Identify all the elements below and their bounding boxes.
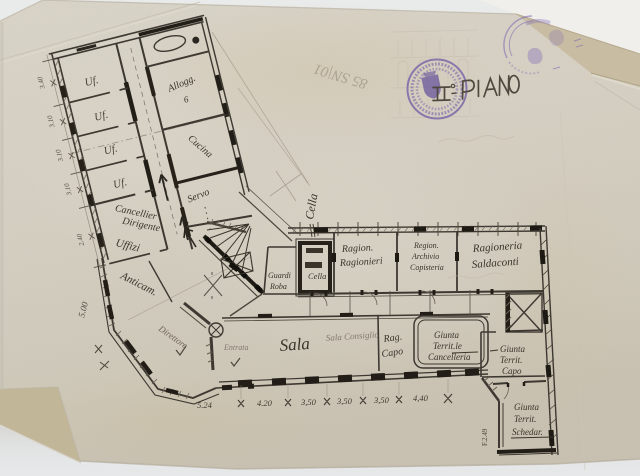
svg-text:Cella: Cella <box>308 271 326 281</box>
svg-text:Archivio: Archivio <box>411 252 439 261</box>
svg-text:Roba: Roba <box>269 282 287 291</box>
svg-text:Ragionieri: Ragionieri <box>339 256 384 269</box>
svg-text:Entrata: Entrata <box>223 343 248 352</box>
svg-text:3,50: 3,50 <box>336 396 353 406</box>
svg-text:Sala: Sala <box>279 334 310 355</box>
svg-text:Cancelleria: Cancelleria <box>428 352 471 362</box>
svg-text:Territ.: Territ. <box>500 355 522 365</box>
svg-text:4.20: 4.20 <box>257 398 273 408</box>
svg-text:Schedar.: Schedar. <box>512 427 543 437</box>
svg-text:4,40: 4,40 <box>413 393 429 403</box>
svg-text:Guardi: Guardi <box>268 271 291 280</box>
svg-text:F.2.49: F.2.49 <box>481 428 489 446</box>
svg-text:Giunta: Giunta <box>500 344 526 354</box>
svg-text:Copisteria: Copisteria <box>410 263 444 272</box>
svg-text:3,50: 3,50 <box>373 395 390 405</box>
svg-text:Territ.le: Territ.le <box>433 341 462 351</box>
svg-text:Giunta: Giunta <box>514 402 540 412</box>
svg-text:Giunta: Giunta <box>434 330 460 340</box>
svg-text:5.24: 5.24 <box>197 400 213 410</box>
svg-text:3,50: 3,50 <box>300 397 317 407</box>
svg-text:Ragion.: Ragion. <box>341 242 374 255</box>
svg-text:Region.: Region. <box>413 241 439 250</box>
svg-text:Territ.: Territ. <box>514 414 536 424</box>
svg-text:Capo: Capo <box>502 366 522 376</box>
